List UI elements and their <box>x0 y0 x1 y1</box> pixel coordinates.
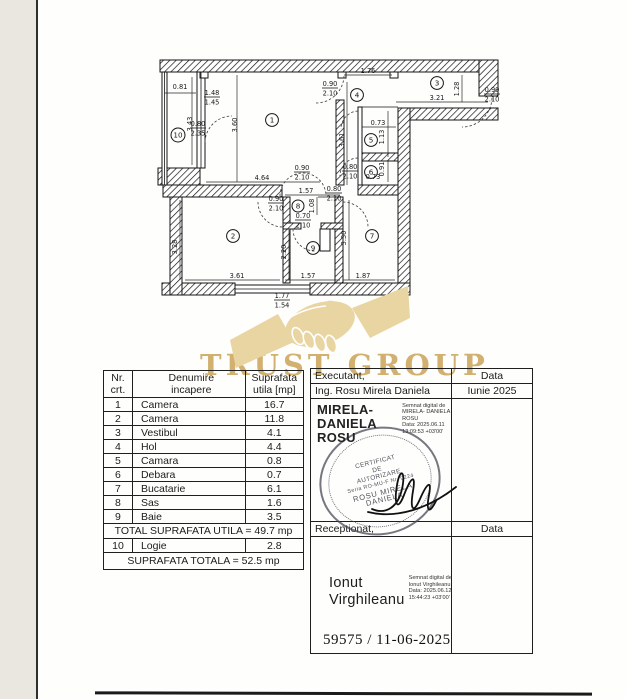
room-number: 5 <box>369 136 374 145</box>
ionut-digital-signature: IonutVirghileanu Semnat digital deIonut … <box>329 575 461 609</box>
dim-label: 1.76 <box>361 67 376 75</box>
table-row: 5Camara0.8 <box>104 454 304 468</box>
dim-label: 3.61 <box>338 133 346 148</box>
table-row: 10Logie2.8 <box>104 539 304 553</box>
handshake-watermark-icon <box>230 280 410 370</box>
executant-label: Executant, <box>311 369 452 383</box>
table-row: 9Baie3.5 <box>104 510 304 524</box>
svg-text:0.70: 0.70 <box>296 212 311 220</box>
registration-reference: 59575 / 11-06-2025 <box>323 632 451 649</box>
svg-text:2.10: 2.10 <box>485 96 500 104</box>
rosu-digital-signature: MIRELA-DANIELAROSU Semnat digital de MIR… <box>317 403 451 445</box>
total-row: SUPRAFATA TOTALA = 52.5 mp <box>104 553 304 570</box>
dim-label: 4.64 <box>255 174 270 182</box>
room-number: 2 <box>231 232 236 241</box>
dim-label: 1.13 <box>378 130 386 145</box>
svg-text:2.10: 2.10 <box>296 222 311 230</box>
table-row: 4Hol4.4 <box>104 440 304 454</box>
svg-text:0.90: 0.90 <box>485 86 500 94</box>
handwritten-signature <box>366 457 458 521</box>
svg-text:0.90: 0.90 <box>295 164 310 172</box>
dim-label: 1.57 <box>299 187 314 195</box>
dim-label: 3.60 <box>231 118 239 133</box>
dim-label: 0.73 <box>371 119 386 127</box>
svg-text:2.10: 2.10 <box>323 90 338 98</box>
svg-text:2.10: 2.10 <box>343 173 358 181</box>
floor-plan-drawing: 0.81 3.43 3.60 4.64 1.76 3.61 1.28 3.21 … <box>140 45 515 320</box>
signature-table: Executant, Data Ing. Rosu Mirela Daniela… <box>310 368 533 654</box>
executant-signature-row: MIRELA-DANIELAROSU Semnat digital de MIR… <box>311 399 532 522</box>
svg-text:0.80: 0.80 <box>191 120 206 128</box>
dim-label: 3.30 <box>340 231 348 246</box>
data-label: Data <box>452 369 532 383</box>
total-utila-row: TOTAL SUPRAFATA UTILA = 49.7 mp <box>104 524 304 539</box>
table-row: 6Debara0.7 <box>104 468 304 482</box>
svg-text:2.35: 2.35 <box>191 130 206 138</box>
executant-header-row: Executant, Data <box>311 369 532 384</box>
executant-name: Ing. Rosu Mirela Daniela <box>311 384 452 398</box>
room-number: 1 <box>270 116 275 125</box>
receptionat-signature-cell: IonutVirghileanu Semnat digital deIonut … <box>311 537 452 653</box>
executant-signature-cell: MIRELA-DANIELAROSU Semnat digital de MIR… <box>311 399 452 521</box>
room-number: 6 <box>369 168 374 177</box>
dim-label: 1.28 <box>453 82 461 97</box>
table-row: 2Camera11.8 <box>104 412 304 426</box>
svg-text:1.45: 1.45 <box>205 99 220 107</box>
scanned-document-page: { "watermark": { "brand": "TRUST GROUP" … <box>0 0 627 699</box>
executant-name-row: Ing. Rosu Mirela Daniela Iunie 2025 <box>311 384 532 399</box>
dim-label: 3.61 <box>230 272 245 280</box>
receptionat-signature-row: IonutVirghileanu Semnat digital deIonut … <box>311 537 532 653</box>
scan-bottom-edge <box>95 691 592 695</box>
table-row: 3Vestibul4.1 <box>104 426 304 440</box>
svg-text:0.90: 0.90 <box>269 195 284 203</box>
dim-label: 1.57 <box>301 272 316 280</box>
room-number: 7 <box>370 232 375 241</box>
dim-label: 1.87 <box>356 272 371 280</box>
scan-left-margin <box>0 0 38 699</box>
executant-signature-data-cell <box>452 399 532 521</box>
room-number: 8 <box>296 202 301 211</box>
dim-label: 2.20 <box>280 245 288 260</box>
svg-text:1.48: 1.48 <box>205 89 220 97</box>
receptionat-data-cell <box>452 537 532 653</box>
svg-text:0.80: 0.80 <box>343 163 358 171</box>
svg-text:2.10: 2.10 <box>295 174 310 182</box>
room-number: 9 <box>311 244 316 253</box>
svg-text:2.10: 2.10 <box>327 195 342 203</box>
rooms-table-header: Nr.crt. Denumireincapere Suprafatautila … <box>104 371 304 398</box>
dim-label: 3.28 <box>171 240 179 255</box>
dim-label: 3.21 <box>430 94 445 102</box>
data-label-2: Data <box>452 522 532 536</box>
room-number: 4 <box>355 91 360 100</box>
svg-text:0.90: 0.90 <box>323 80 338 88</box>
table-row: 8Sas1.6 <box>104 496 304 510</box>
table-row: 7Bucatarie6.1 <box>104 482 304 496</box>
dim-label: 0.81 <box>173 83 188 91</box>
rooms-area-table: Nr.crt. Denumireincapere Suprafatautila … <box>103 370 304 570</box>
executant-date: Iunie 2025 <box>452 384 532 398</box>
room-number: 3 <box>435 79 440 88</box>
room-number: 10 <box>173 131 183 140</box>
svg-text:2.10: 2.10 <box>269 205 284 213</box>
table-row: 1Camera16.7 <box>104 398 304 412</box>
svg-text:0.80: 0.80 <box>327 185 342 193</box>
